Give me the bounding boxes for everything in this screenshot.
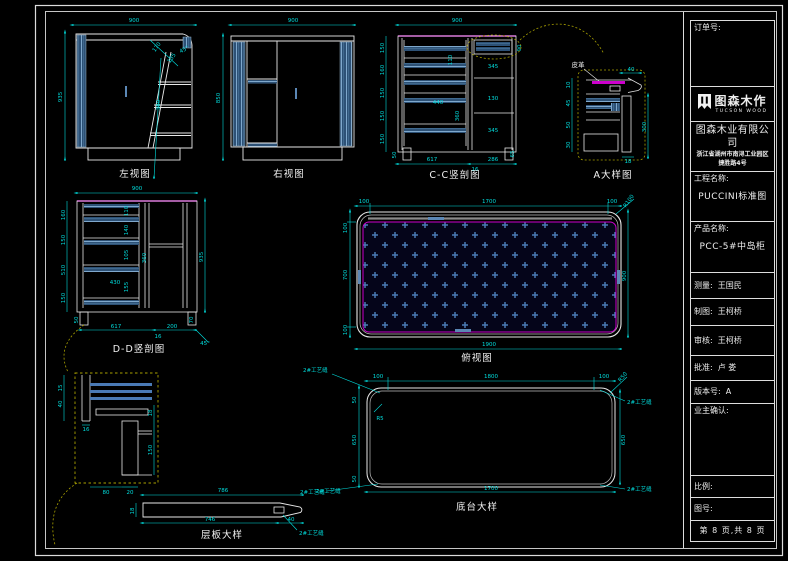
svg-text:135: 135 xyxy=(167,52,178,64)
company-address-line1: 浙江省湖州市南浔工业园区 xyxy=(694,151,771,159)
seam-label: 2#工艺缝 xyxy=(627,485,652,493)
svg-text:100: 100 xyxy=(373,374,384,380)
seam-label: 2#工艺缝 xyxy=(299,529,324,537)
drawing-sheet: 900 935 170 135 45° 380 左视图 900 850 右视图 xyxy=(0,0,788,561)
svg-text:80: 80 xyxy=(103,490,110,496)
svg-text:850: 850 xyxy=(216,92,222,103)
svg-text:20: 20 xyxy=(127,490,134,496)
measure-cell: 测量: 王国民 xyxy=(691,273,774,299)
svg-text:150: 150 xyxy=(380,110,386,121)
seam-label: 2#工艺缝 xyxy=(303,366,328,374)
svg-text:50: 50 xyxy=(352,475,358,482)
svg-text:10: 10 xyxy=(566,81,572,88)
svg-text:300: 300 xyxy=(642,121,648,132)
seam-label: 2#工艺缝 xyxy=(316,487,341,495)
view-title-base: 底台大样 xyxy=(456,501,498,513)
svg-text:50: 50 xyxy=(74,316,80,323)
audit-cell: 审核: 王柯桥 xyxy=(691,326,774,356)
leather-strip xyxy=(592,81,625,84)
svg-text:155: 155 xyxy=(124,281,130,292)
svg-text:430: 430 xyxy=(110,280,121,286)
scale-cell: 比例: xyxy=(691,476,774,498)
audit-label: 审核: xyxy=(694,336,713,346)
product-name-label: 产品名称: xyxy=(694,224,729,233)
svg-text:510: 510 xyxy=(61,264,67,275)
owner-confirm-cell: 业主确认: xyxy=(691,404,774,476)
version-value: A xyxy=(726,387,731,397)
seam-label: 2#工艺缝 xyxy=(627,398,652,406)
audit-value: 王柯桥 xyxy=(718,336,742,346)
draft-cell: 制图: 王柯桥 xyxy=(691,299,774,326)
svg-text:18: 18 xyxy=(625,159,632,165)
svg-text:150: 150 xyxy=(380,42,386,53)
company-logo-cell: 图森木作 TUCSON WOOD xyxy=(691,87,774,122)
svg-text:18: 18 xyxy=(130,507,136,514)
view-title-dd: D-D竖剖图 xyxy=(113,343,166,355)
svg-text:360: 360 xyxy=(142,252,148,263)
svg-text:16: 16 xyxy=(155,334,162,340)
svg-text:110: 110 xyxy=(448,54,454,65)
svg-text:140: 140 xyxy=(124,224,130,235)
svg-text:70: 70 xyxy=(189,316,195,323)
svg-text:90: 90 xyxy=(517,44,523,51)
side-panel xyxy=(77,35,86,147)
svg-text:50: 50 xyxy=(352,396,358,403)
approve-value: 卢 娄 xyxy=(718,363,737,373)
svg-text:40: 40 xyxy=(58,400,64,407)
svg-text:345: 345 xyxy=(488,128,499,134)
svg-text:45: 45 xyxy=(566,99,572,106)
svg-text:200: 200 xyxy=(167,324,178,330)
tucson-wood-logo-icon xyxy=(698,94,711,109)
svg-text:900: 900 xyxy=(132,186,143,192)
page-info-cell: 第 8 页,共 8 页 xyxy=(691,521,774,541)
brand-name: 图森木作 xyxy=(714,94,766,109)
svg-text:110: 110 xyxy=(124,205,130,216)
svg-text:1700: 1700 xyxy=(482,199,496,205)
svg-text:360: 360 xyxy=(455,110,461,121)
svg-text:65: 65 xyxy=(510,150,516,157)
order-number-label: 订单号: xyxy=(694,23,721,32)
owner-confirm-label: 业主确认: xyxy=(694,406,729,415)
order-number-cell: 订单号: xyxy=(691,21,774,87)
svg-text:100: 100 xyxy=(599,374,610,380)
svg-text:105: 105 xyxy=(124,249,130,260)
svg-text:286: 286 xyxy=(488,157,499,163)
svg-text:130: 130 xyxy=(488,96,499,102)
measure-label: 测量: xyxy=(694,281,713,291)
corner-detail-view: 15 40 16 18 150 80 20 xyxy=(53,373,158,545)
svg-text:100: 100 xyxy=(343,222,349,233)
approve-cell: 批准: 卢 娄 xyxy=(691,356,774,381)
detail-a-view: 皮革 40 300 18 10 45 50 30 A大样图 xyxy=(566,60,648,181)
view-title-shelf: 层板大样 xyxy=(201,529,243,541)
svg-text:R50: R50 xyxy=(617,371,629,384)
svg-text:16: 16 xyxy=(83,427,90,433)
base-detail-view: 100 1800 100 R50 50 650 50 650 1700 R5 2… xyxy=(300,366,652,513)
title-block: 订单号: 图森木作 TUCSON WOOD 图森木业有限公司 浙江省湖州市南浔工… xyxy=(690,20,775,542)
svg-text:150: 150 xyxy=(61,234,67,245)
drawing-number-cell: 图号: xyxy=(691,498,774,521)
scale-label: 比例: xyxy=(694,482,713,492)
view-title-cc: C-C竖剖图 xyxy=(429,169,480,181)
svg-text:380: 380 xyxy=(156,99,162,110)
version-label: 版本号: xyxy=(694,387,721,397)
plan-view: 100 1700 100 R100 100 700 100 900 1900 俯… xyxy=(343,193,636,364)
page-info: 第 8 页,共 8 页 xyxy=(700,526,766,536)
view-title-right: 右视图 xyxy=(273,168,305,180)
svg-text:617: 617 xyxy=(111,324,122,330)
company-address-line2: 捷胜路4号 xyxy=(694,160,771,168)
draft-value: 王柯桥 xyxy=(718,307,742,317)
svg-text:650: 650 xyxy=(621,434,627,445)
svg-text:700: 700 xyxy=(343,269,349,280)
svg-text:650: 650 xyxy=(352,434,358,445)
svg-text:1900: 1900 xyxy=(482,342,496,348)
view-title-left: 左视图 xyxy=(119,168,151,180)
svg-text:18: 18 xyxy=(148,409,154,416)
svg-text:150: 150 xyxy=(380,87,386,98)
svg-text:1800: 1800 xyxy=(484,374,498,380)
svg-text:150: 150 xyxy=(148,444,154,455)
dim-left-width: 900 xyxy=(129,18,140,24)
dim-left-height: 935 xyxy=(58,91,64,102)
measure-value: 王国民 xyxy=(718,281,742,291)
leather-top-panel xyxy=(363,222,616,332)
svg-text:345: 345 xyxy=(488,64,499,70)
approve-label: 批准: xyxy=(694,363,713,373)
dd-section-view: 900 935 160 150 510 150 110 140 105 430 … xyxy=(61,186,210,372)
svg-text:1700: 1700 xyxy=(484,486,498,492)
view-title-plan: 俯视图 xyxy=(461,352,493,364)
product-name-value: PCC-5#中岛柜 xyxy=(694,242,771,253)
left-view: 900 935 170 135 45° 380 左视图 xyxy=(58,18,196,180)
leader-to-corner-detail xyxy=(64,325,84,372)
svg-text:746: 746 xyxy=(205,517,216,523)
right-view: 900 850 右视图 xyxy=(216,18,355,180)
project-name-value: PUCCINI标准图 xyxy=(694,192,771,203)
svg-text:R100: R100 xyxy=(623,193,636,209)
version-cell: 版本号: A xyxy=(691,381,774,404)
svg-text:786: 786 xyxy=(218,488,229,494)
svg-text:900: 900 xyxy=(452,18,463,24)
svg-text:R5: R5 xyxy=(376,416,384,422)
svg-text:40: 40 xyxy=(288,517,295,523)
svg-text:150: 150 xyxy=(61,292,67,303)
svg-text:40: 40 xyxy=(628,67,635,73)
cc-section-view: 900 150 160 150 150 150 345 130 345 110 … xyxy=(380,18,604,181)
svg-text:617: 617 xyxy=(427,157,438,163)
draft-label: 制图: xyxy=(694,307,713,317)
svg-text:900: 900 xyxy=(288,18,299,24)
svg-text:150: 150 xyxy=(380,133,386,144)
svg-text:45°: 45° xyxy=(200,341,210,347)
cad-drawing-canvas: 900 935 170 135 45° 380 左视图 900 850 右视图 xyxy=(0,0,788,561)
svg-text:935: 935 xyxy=(199,251,205,262)
svg-text:160: 160 xyxy=(61,209,67,220)
svg-text:100: 100 xyxy=(343,324,349,335)
material-label-leather: 皮革 xyxy=(572,60,586,69)
company-name: 图森木业有限公司 xyxy=(694,125,771,150)
svg-text:50: 50 xyxy=(392,151,398,158)
drawing-number-label: 图号: xyxy=(694,504,713,514)
svg-text:100: 100 xyxy=(359,199,370,205)
view-title-detail-a: A大样图 xyxy=(594,169,633,181)
svg-text:100: 100 xyxy=(607,199,618,205)
svg-text:30: 30 xyxy=(566,141,572,148)
product-name-cell: 产品名称: PCC-5#中岛柜 xyxy=(691,222,774,273)
svg-text:440: 440 xyxy=(433,100,444,106)
svg-text:160: 160 xyxy=(380,64,386,75)
svg-text:900: 900 xyxy=(622,270,628,281)
leader-to-detail-a xyxy=(520,24,604,54)
svg-text:15: 15 xyxy=(58,384,64,391)
svg-text:50: 50 xyxy=(566,121,572,128)
project-name-cell: 工程名称: PUCCINI标准图 xyxy=(691,172,774,222)
brand-name-en: TUCSON WOOD xyxy=(716,109,768,115)
leader-curve xyxy=(53,483,77,545)
project-name-label: 工程名称: xyxy=(694,174,729,183)
company-info-cell: 图森木业有限公司 浙江省湖州市南浔工业园区 捷胜路4号 xyxy=(691,122,774,172)
